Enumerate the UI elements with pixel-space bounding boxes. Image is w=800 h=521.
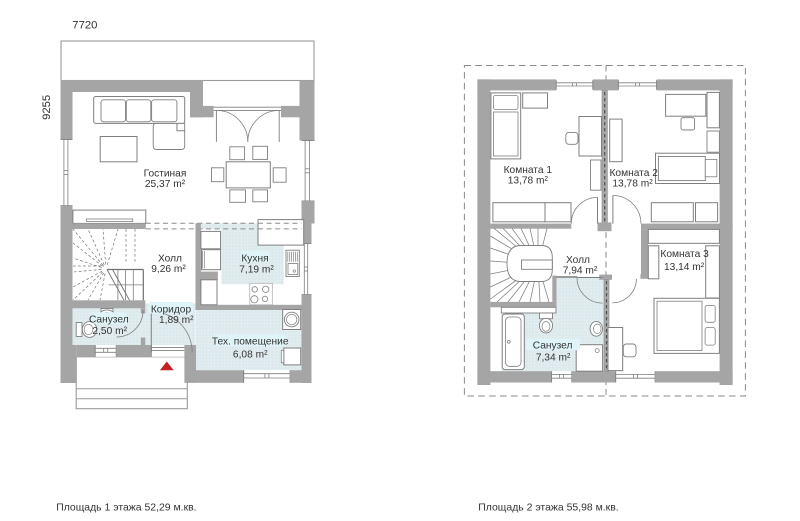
svg-text:Санузел: Санузел: [533, 341, 573, 352]
svg-text:Кухня: Кухня: [241, 253, 268, 264]
svg-text:13,14 m²: 13,14 m²: [664, 262, 705, 273]
svg-text:7,19 m²: 7,19 m²: [239, 264, 274, 275]
svg-text:Комната 2: Комната 2: [610, 168, 659, 179]
svg-text:9,26 m²: 9,26 m²: [151, 264, 186, 275]
svg-text:7,94 m²: 7,94 m²: [563, 266, 598, 277]
svg-text:Коридор: Коридор: [151, 304, 192, 315]
svg-text:Площадь 1 этажа 52,29 м.кв.: Площадь 1 этажа 52,29 м.кв.: [56, 502, 196, 513]
svg-text:Холл: Холл: [566, 255, 590, 266]
svg-text:2,50 m²: 2,50 m²: [92, 326, 127, 337]
svg-text:Тех. помещение: Тех. помещение: [212, 337, 289, 348]
svg-text:Площадь 2 этажа 55,98 м.кв.: Площадь 2 этажа 55,98 м.кв.: [478, 502, 618, 513]
svg-text:1,89 m²: 1,89 m²: [159, 315, 194, 326]
svg-text:13,78 m²: 13,78 m²: [508, 175, 549, 186]
svg-text:25,37 m²: 25,37 m²: [145, 179, 186, 190]
svg-text:Комната 1: Комната 1: [504, 165, 553, 176]
svg-text:Санузел: Санузел: [89, 314, 129, 325]
svg-text:9255: 9255: [41, 95, 53, 120]
svg-text:Гостиная: Гостиная: [144, 168, 187, 179]
svg-text:Холл: Холл: [158, 254, 182, 265]
svg-text:7,34 m²: 7,34 m²: [536, 352, 571, 363]
svg-text:13,78 m²: 13,78 m²: [612, 178, 653, 189]
svg-text:6,08 m²: 6,08 m²: [233, 349, 268, 360]
svg-text:7720: 7720: [72, 20, 97, 32]
svg-text:Комната 3: Комната 3: [660, 249, 709, 260]
